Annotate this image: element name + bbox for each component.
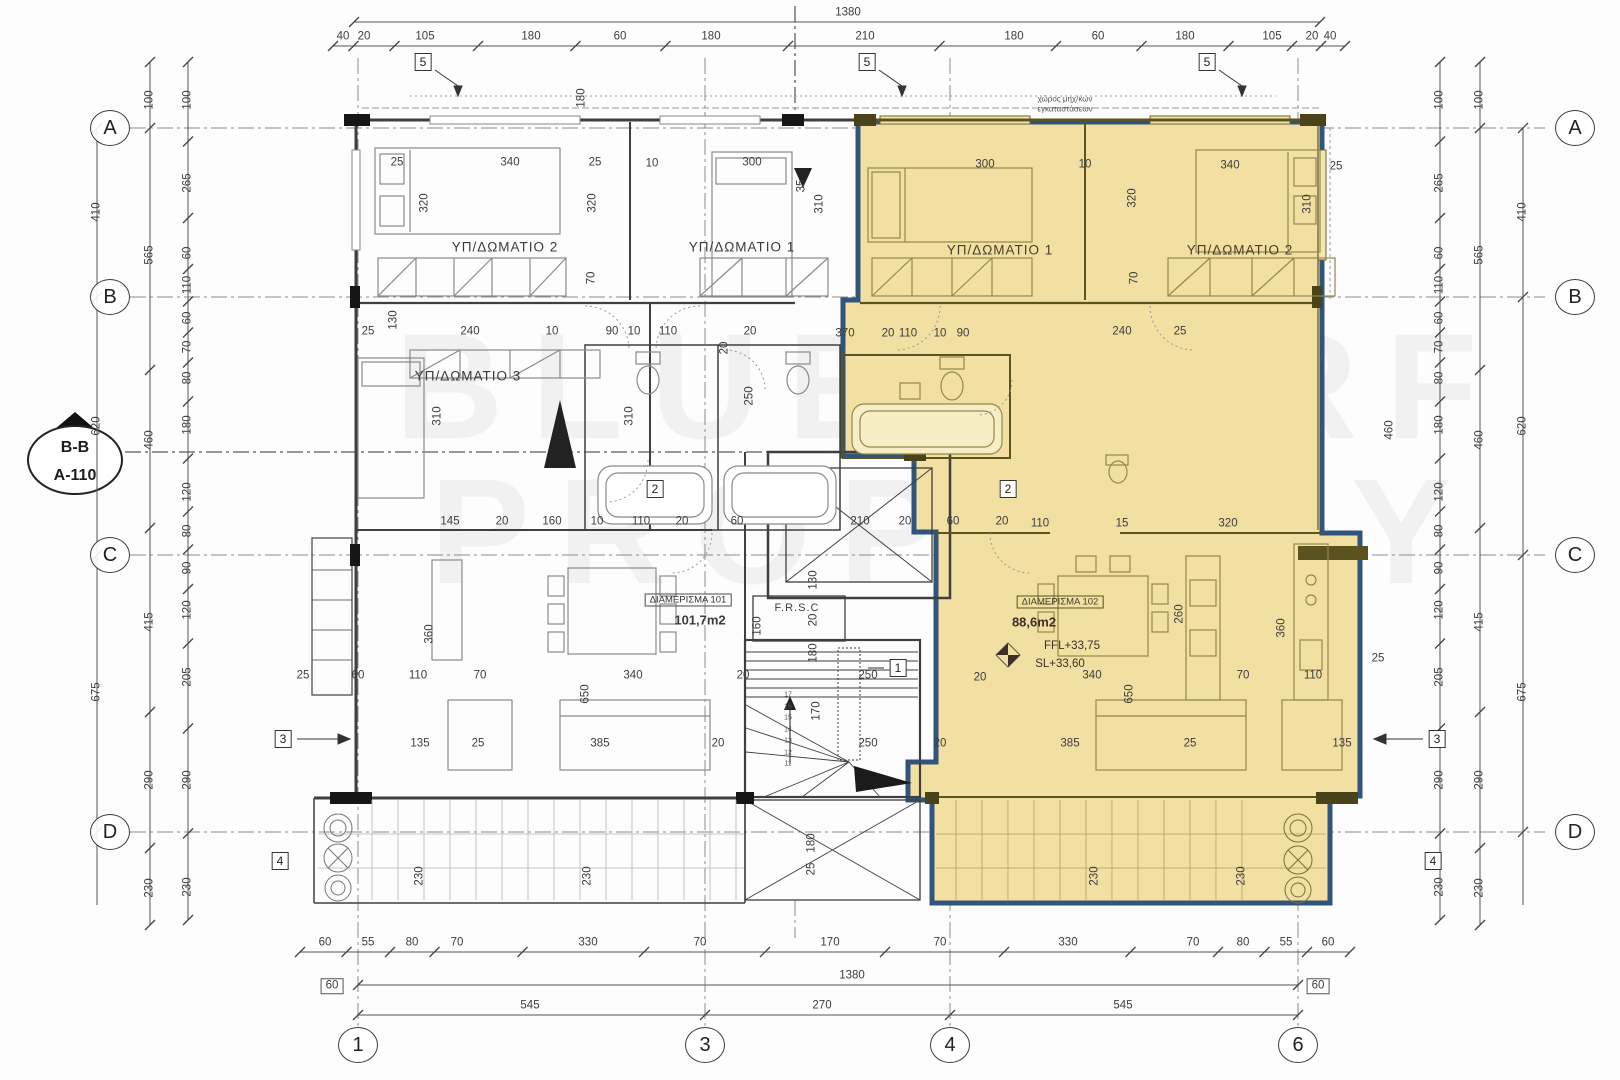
dim-label: 415 — [1474, 612, 1486, 631]
grid-bubble-6: 6 — [1278, 1027, 1318, 1063]
dim-label: 130 — [388, 310, 400, 329]
stair-step-number: 13 — [784, 738, 792, 745]
dim-label: 310 — [814, 194, 826, 213]
dim-label: 70 — [934, 937, 947, 949]
dim-label: 290 — [144, 770, 156, 789]
dim-label: 20 — [996, 516, 1009, 528]
dim-label: 25 — [806, 863, 818, 876]
dim-label: 80 — [406, 937, 419, 949]
stair-step-number: 14 — [784, 726, 792, 733]
stair-step-number: 12 — [784, 749, 792, 756]
grid-bubble-D: D — [90, 814, 130, 850]
stair-step-number: 17 — [784, 692, 792, 699]
dim-label: 60 — [319, 937, 332, 949]
dim-label: 20 — [744, 326, 757, 338]
room-label-left-bed3: ΥΠ/ΔΩΜΑΤΙΟ 3 — [415, 369, 522, 384]
dim-label: 460 — [1474, 430, 1486, 449]
dim-label: 90 — [606, 326, 619, 338]
dim-label: 10 — [934, 328, 947, 340]
dim-label: 230 — [1089, 866, 1101, 885]
top-note-line1: χώρος μηχ/κων — [1038, 95, 1093, 104]
dim-label: 310 — [432, 406, 444, 425]
dim-label: 110 — [409, 670, 427, 682]
dim-label: 330 — [1058, 937, 1077, 949]
dim-label: 25 — [472, 738, 485, 750]
dim-label: 180 — [576, 88, 588, 107]
dim-label: 260 — [1174, 604, 1186, 623]
dim-label: 320 — [1127, 188, 1139, 207]
apartment-101-area: 101,7m2 — [674, 613, 725, 628]
dim-label: 20 — [808, 614, 820, 627]
detail-marker-2: 2 — [1000, 480, 1017, 498]
dim-label: 105 — [415, 31, 434, 43]
dim-label: 650 — [1124, 684, 1136, 703]
dim-label: 170 — [811, 701, 823, 720]
dim-label: 230 — [182, 877, 194, 896]
dim-label: 160 — [752, 616, 764, 635]
dim-label: 10 — [628, 326, 641, 338]
dim-label: 385 — [590, 738, 609, 750]
dim-label: 180 — [521, 31, 540, 43]
dim-label: 370 — [835, 328, 854, 340]
dim-label: 145 — [440, 516, 459, 528]
dim-label: 230 — [414, 866, 426, 885]
dim-label: 410 — [1517, 202, 1529, 221]
dim-label: 25 — [1184, 738, 1197, 750]
dim-label: 25 — [1372, 653, 1385, 665]
dim-label: 320 — [587, 193, 599, 212]
dim-label: 70 — [182, 341, 194, 354]
dim-label: 120 — [1434, 600, 1446, 619]
grid-bubble-D: D — [1555, 814, 1595, 850]
dim-label: 25 — [297, 670, 310, 682]
dim-label: 55 — [362, 937, 375, 949]
dim-label: 250 — [858, 738, 877, 750]
detail-marker-5: 5 — [1199, 53, 1216, 71]
dim-label: 240 — [1112, 326, 1131, 338]
dim-label: 20 — [496, 516, 509, 528]
dim-label: 180 — [182, 415, 194, 434]
grid-bubble-B: B — [1555, 279, 1595, 315]
room-label-left-bed1: ΥΠ/ΔΩΜΑΤΙΟ 1 — [689, 240, 796, 255]
dim-label: 1380 — [839, 970, 865, 982]
dim-label: 675 — [1517, 682, 1529, 701]
stair-step-number: 15 — [784, 715, 792, 722]
grid-bubble-4: 4 — [930, 1027, 970, 1063]
dim-label: 40 — [337, 31, 350, 43]
dim-label: 25 — [1174, 326, 1187, 338]
dim-label: 340 — [1082, 670, 1101, 682]
dim-label: 250 — [858, 670, 877, 682]
dim-label: 205 — [182, 667, 194, 686]
dim-label: 80 — [182, 525, 194, 538]
room-label-right-bed2: ΥΠ/ΔΩΜΑΤΙΟ 2 — [1187, 243, 1294, 258]
dim-label: 60 — [1434, 247, 1446, 260]
dim-label: 70 — [1237, 670, 1250, 682]
dim-label: 265 — [182, 173, 194, 192]
dim-label: 80 — [1434, 525, 1446, 538]
dim-label: 90 — [957, 328, 970, 340]
dim-label: 210 — [855, 31, 874, 43]
dim-label: 70 — [1129, 272, 1141, 285]
dim-label: 100 — [1474, 90, 1486, 109]
dim-label: 20 — [712, 738, 725, 750]
dim-label: 290 — [1434, 770, 1446, 789]
dim-label: 60 — [352, 670, 365, 682]
dim-label: 25 — [1330, 161, 1343, 173]
grid-bubble-B: B — [90, 279, 130, 315]
dim-label: 230 — [1474, 878, 1486, 897]
grid-bubble-C: C — [1555, 537, 1595, 573]
dim-label: 60 — [1434, 312, 1446, 325]
detail-marker-5: 5 — [859, 53, 876, 71]
dim-label: 300 — [742, 157, 761, 169]
dim-label: 120 — [182, 482, 194, 501]
dim-label: 25 — [391, 157, 404, 169]
dim-label: 300 — [975, 159, 994, 171]
dim-label: 10 — [1079, 159, 1092, 171]
dim-label: 180 — [1004, 31, 1023, 43]
dim-label: 565 — [144, 245, 156, 264]
dim-label: 265 — [1434, 173, 1446, 192]
dim-label: 80 — [182, 372, 194, 385]
dim-label: 545 — [1113, 1000, 1132, 1012]
dim-label: 180 — [1175, 31, 1194, 43]
dim-label: 135 — [1332, 738, 1351, 750]
dim-label: 230 — [1434, 877, 1446, 896]
apartment-102-area: 88,6m2 — [1012, 615, 1056, 630]
dim-label: 55 — [1280, 937, 1293, 949]
dim-label: 460 — [1384, 420, 1396, 439]
dim-label: 110 — [1434, 276, 1446, 294]
dim-label: 545 — [520, 1000, 539, 1012]
dim-label: 20 — [934, 738, 947, 750]
dim-label: 10 — [591, 516, 604, 528]
dim-label: 40 — [1324, 31, 1337, 43]
dim-label: 60 — [1092, 31, 1105, 43]
grid-bubble-C: C — [90, 537, 130, 573]
dim-label: 110 — [182, 276, 194, 294]
dim-label: 415 — [144, 612, 156, 631]
dim-label: 270 — [812, 1000, 831, 1012]
dim-label: 340 — [623, 670, 642, 682]
dim-label: 120 — [1434, 482, 1446, 501]
dim-label: 290 — [1474, 770, 1486, 789]
dim-label: 70 — [694, 937, 707, 949]
dim-label: 20 — [719, 342, 731, 355]
dim-label: 330 — [578, 937, 597, 949]
dim-label: 60 — [1307, 978, 1330, 994]
dim-label: 70 — [1434, 341, 1446, 354]
dim-label: 60 — [731, 516, 744, 528]
dim-label: 320 — [419, 193, 431, 212]
detail-marker-3: 3 — [275, 730, 292, 748]
dim-label: 90 — [1434, 562, 1446, 575]
dim-label: 20 — [899, 516, 912, 528]
detail-marker-1: 1 — [890, 659, 907, 677]
dim-label: 100 — [1434, 90, 1446, 109]
dim-label: 60 — [182, 312, 194, 325]
dim-label: 385 — [1060, 738, 1079, 750]
dim-label: 620 — [1517, 416, 1529, 435]
frsc-label: F.R.S.C — [775, 602, 820, 614]
grid-bubble-3: 3 — [685, 1027, 725, 1063]
grid-bubble-A: A — [1555, 110, 1595, 146]
dim-label: 25 — [589, 157, 602, 169]
dim-label: 110 — [632, 516, 650, 528]
dim-label: 35 — [796, 180, 808, 193]
dim-label: 240 — [460, 326, 479, 338]
dim-label: 110 — [899, 328, 917, 340]
dim-label: 230 — [1236, 866, 1248, 885]
dim-label: 60 — [947, 516, 960, 528]
floor-plan-page: BLUE SURF PROPERTY — [0, 0, 1620, 1080]
dim-label: 20 — [737, 670, 750, 682]
dim-label: 25 — [362, 326, 375, 338]
dim-label: 20 — [882, 328, 895, 340]
apartment-102-ffl: FFL+33,75 — [1044, 640, 1100, 652]
apartment-101-name: ΔΙΑΜΕΡΙΣΜΑ 101 — [645, 594, 732, 607]
dim-label: 180 — [701, 31, 720, 43]
dim-label: 230 — [144, 878, 156, 897]
dim-label: 320 — [1218, 518, 1237, 530]
dim-label: 160 — [542, 516, 561, 528]
apartment-102-sl: SL+33,60 — [1035, 658, 1085, 670]
dim-label: 70 — [586, 272, 598, 285]
dim-label: 135 — [410, 738, 429, 750]
section-marker-bottom-text: A-110 — [54, 467, 97, 485]
dim-label: 310 — [624, 406, 636, 425]
dim-label: 100 — [182, 90, 194, 109]
dim-label: 1380 — [835, 7, 861, 19]
dim-label: 340 — [500, 157, 519, 169]
dim-label: 60 — [614, 31, 627, 43]
dim-label: 250 — [744, 386, 756, 405]
dim-label: 675 — [91, 682, 103, 701]
dim-label: 60 — [1322, 937, 1335, 949]
dim-label: 410 — [91, 202, 103, 221]
dim-label: 205 — [1434, 667, 1446, 686]
labels-layer: 1380402010518060180210180601801052040605… — [0, 0, 1620, 1080]
dim-label: 90 — [182, 562, 194, 575]
dim-label: 70 — [451, 937, 464, 949]
dim-label: 460 — [144, 430, 156, 449]
dim-label: 10 — [546, 326, 559, 338]
dim-label: 565 — [1474, 245, 1486, 264]
room-label-right-bed1: ΥΠ/ΔΩΜΑΤΙΟ 1 — [947, 243, 1054, 258]
dim-label: 105 — [1262, 31, 1281, 43]
detail-marker-4: 4 — [1425, 852, 1442, 870]
room-label-left-bed2: ΥΠ/ΔΩΜΑΤΙΟ 2 — [452, 240, 559, 255]
dim-label: 170 — [820, 937, 839, 949]
dim-label: 120 — [182, 600, 194, 619]
dim-label: 70 — [474, 670, 487, 682]
dim-label: 20 — [358, 31, 371, 43]
dim-label: 60 — [182, 247, 194, 260]
detail-marker-5: 5 — [415, 53, 432, 71]
dim-label: 130 — [808, 570, 820, 589]
detail-marker-2: 2 — [647, 480, 664, 498]
dim-label: 180 — [1434, 415, 1446, 434]
dim-label: 70 — [1187, 937, 1200, 949]
dim-label: 650 — [580, 684, 592, 703]
dim-label: 310 — [1302, 194, 1314, 213]
stair-step-number: 11 — [784, 761, 791, 768]
dim-label: 20 — [1306, 31, 1319, 43]
dim-label: 360 — [424, 624, 436, 643]
dim-label: 620 — [91, 416, 103, 435]
dim-label: 230 — [582, 866, 594, 885]
section-marker-top-text: B-B — [61, 439, 89, 457]
dim-label: 100 — [144, 90, 156, 109]
dim-label: 110 — [1031, 518, 1049, 530]
dim-label: 20 — [676, 516, 689, 528]
dim-label: 60 — [321, 978, 344, 994]
dim-label: 20 — [974, 672, 987, 684]
dim-label: 80 — [1434, 372, 1446, 385]
dim-label: 360 — [1276, 618, 1288, 637]
dim-label: 110 — [1304, 670, 1322, 682]
stair-step-number: 16 — [784, 703, 792, 710]
dim-label: 15 — [1116, 518, 1129, 530]
dim-label: 10 — [646, 158, 659, 170]
dim-label: 80 — [1237, 937, 1250, 949]
dim-label: 340 — [1220, 160, 1239, 172]
grid-bubble-1: 1 — [338, 1027, 378, 1063]
top-note-line2: εγκαταστάσεων — [1037, 105, 1092, 114]
dim-label: 210 — [850, 516, 869, 528]
dim-label: 290 — [182, 770, 194, 789]
dim-label: 180 — [808, 643, 820, 662]
detail-marker-4: 4 — [272, 852, 289, 870]
dim-label: 180 — [806, 833, 818, 852]
grid-bubble-A: A — [90, 110, 130, 146]
detail-marker-3: 3 — [1429, 730, 1446, 748]
dim-label: 110 — [659, 326, 677, 338]
apartment-102-name: ΔΙΑΜΕΡΙΣΜΑ 102 — [1017, 596, 1104, 609]
